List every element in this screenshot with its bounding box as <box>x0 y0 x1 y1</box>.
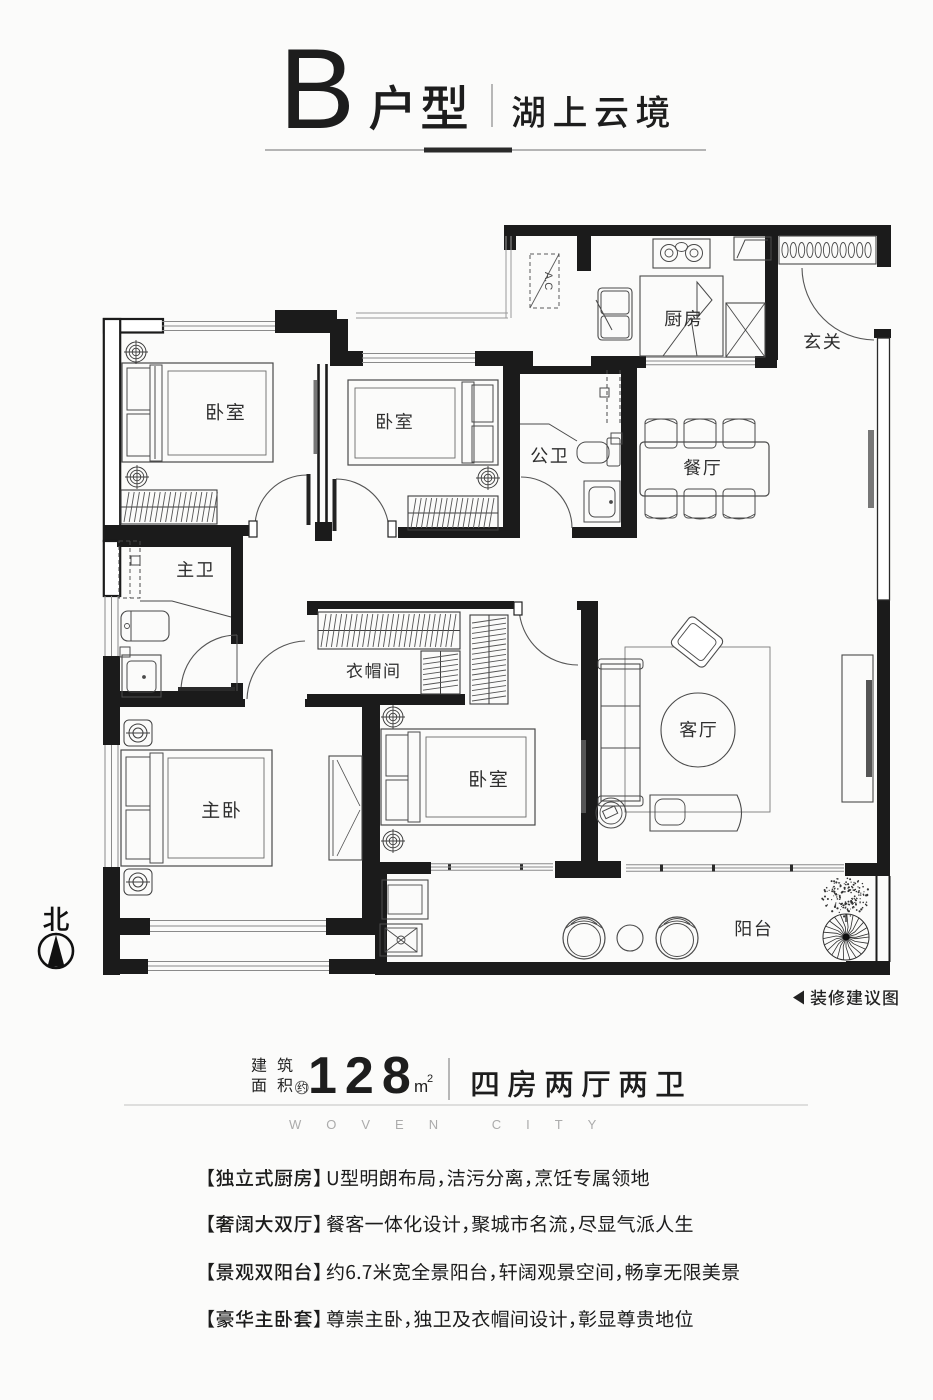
svg-text:B: B <box>279 26 355 153</box>
svg-text:A.C: A.C <box>542 272 554 290</box>
svg-text:2: 2 <box>427 1073 433 1085</box>
svg-text:WOVEN CITY: WOVEN CITY <box>289 1117 621 1132</box>
svg-text:128: 128 <box>308 1047 419 1105</box>
